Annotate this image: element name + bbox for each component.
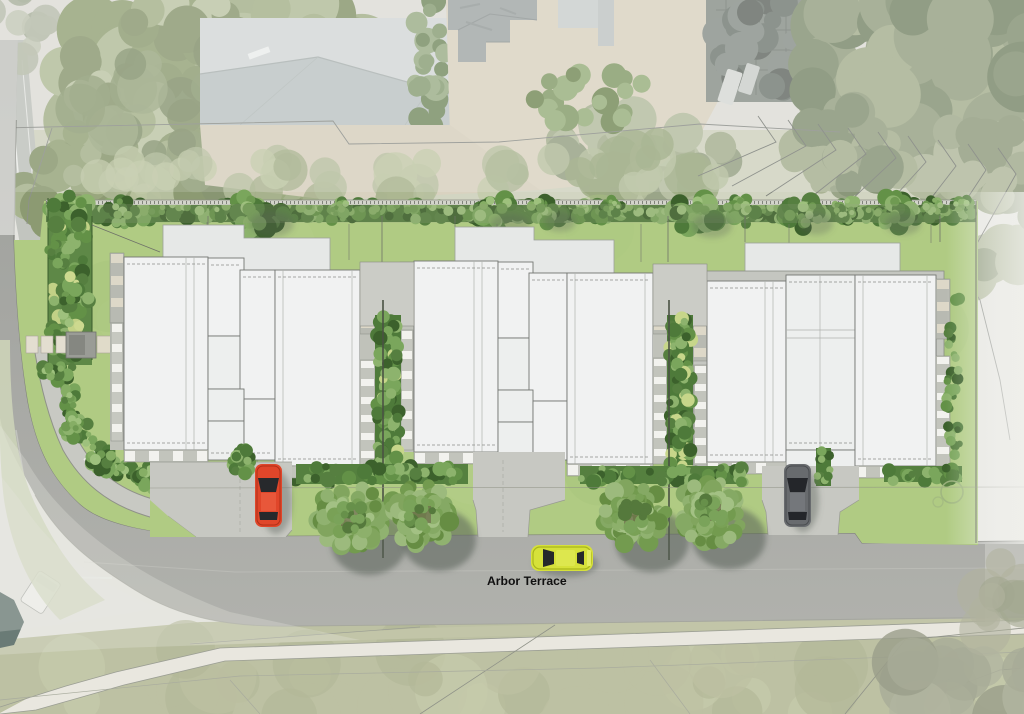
svg-text:Arbor Terrace: Arbor Terrace: [487, 574, 567, 588]
